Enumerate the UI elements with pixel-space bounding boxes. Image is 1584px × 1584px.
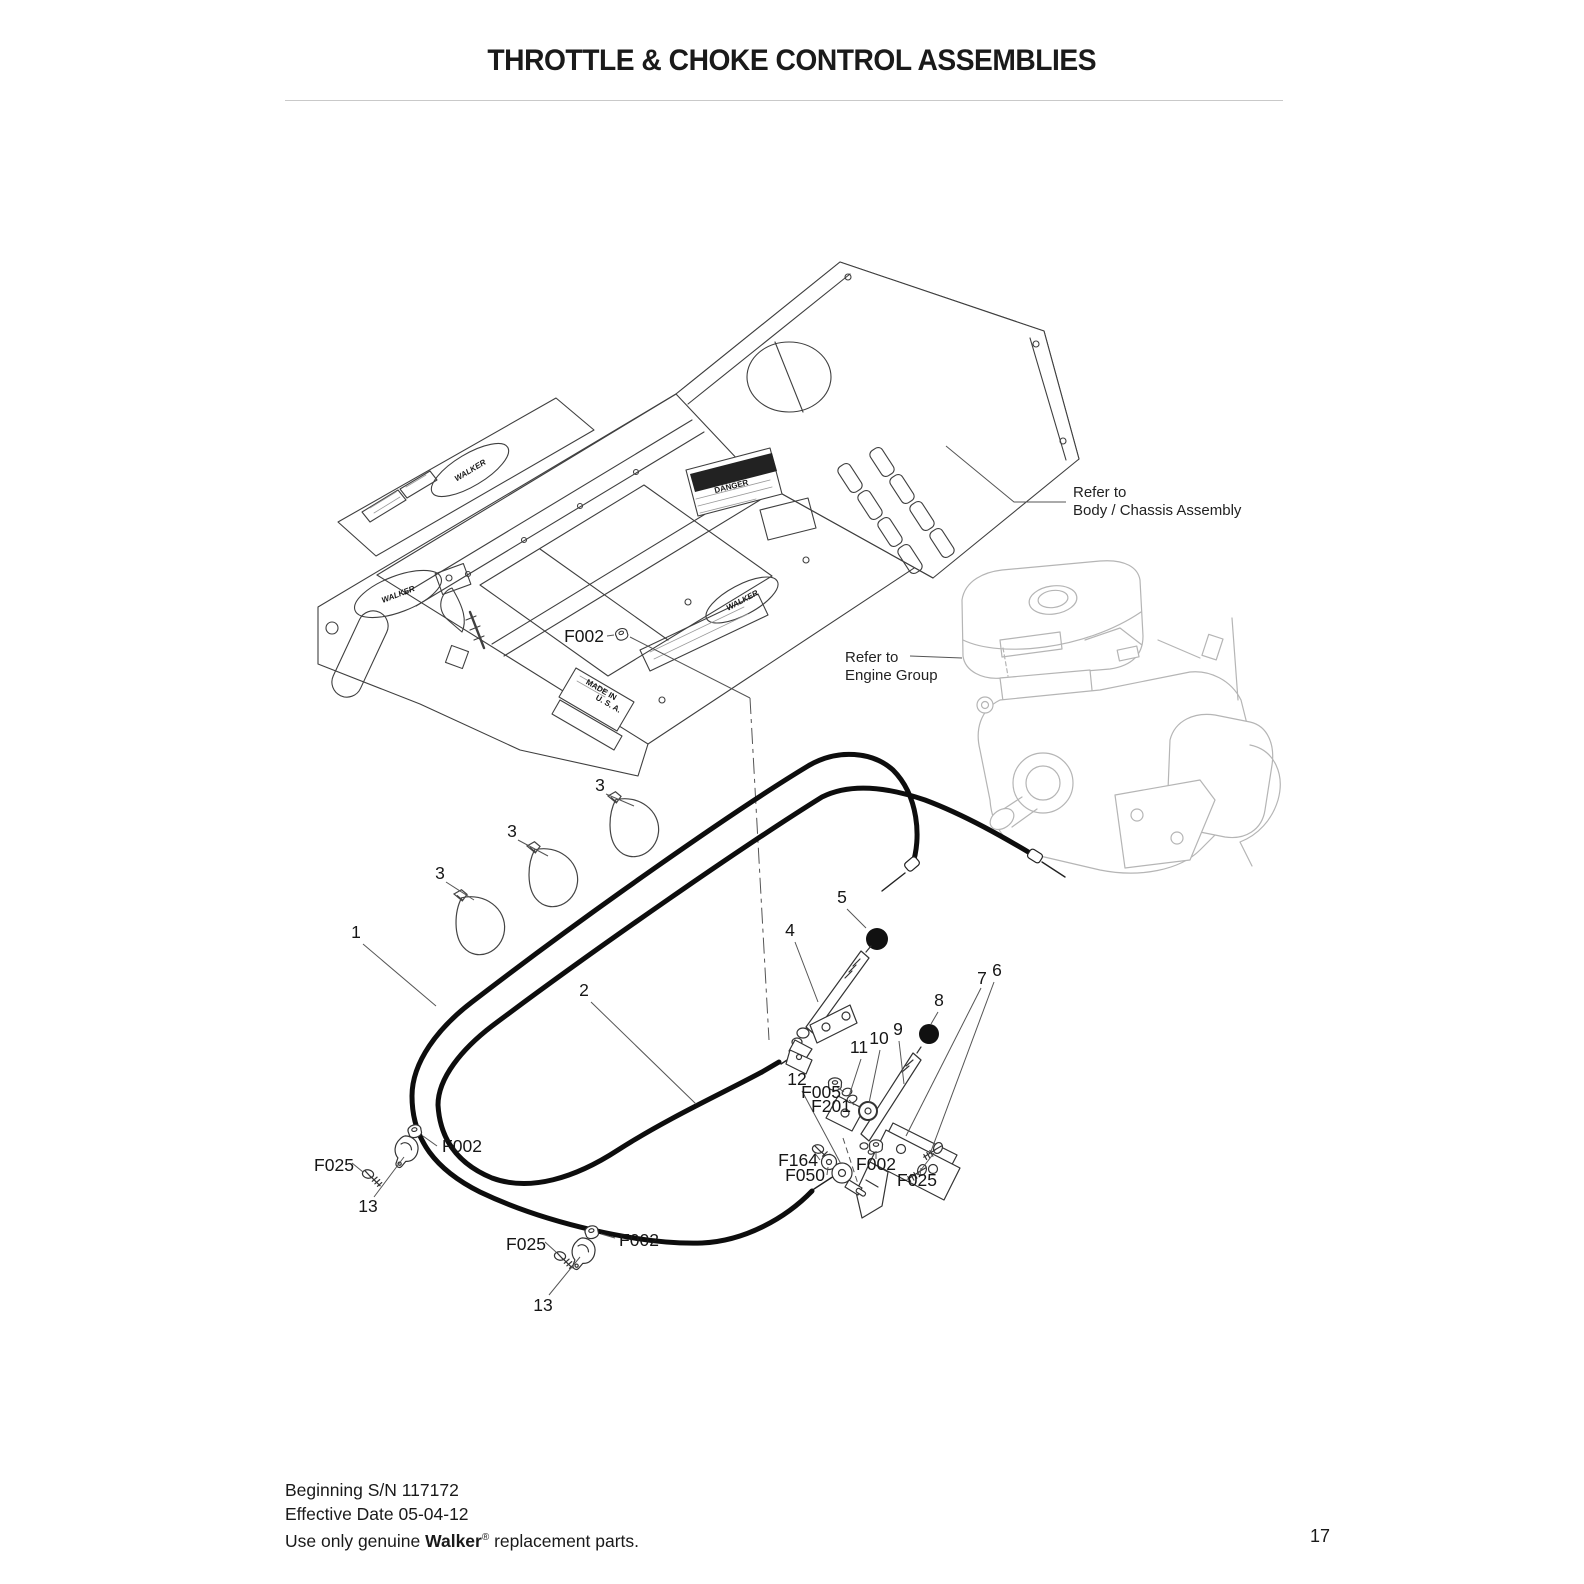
mower-body-art [318, 262, 1079, 776]
footer-genuine-parts: Use only genuine Walker® replacement par… [285, 1526, 639, 1553]
label-cable-2: 2 [579, 980, 589, 1000]
refer-engine-line1: Refer to [845, 649, 898, 666]
refer-engine-line2: Engine Group [845, 667, 938, 684]
label-plate-11: 11 [850, 1037, 868, 1057]
label-f050: F050 [785, 1165, 825, 1185]
label-f002-right: F002 [856, 1154, 896, 1174]
washer-10-art [859, 1102, 877, 1120]
refer-body-line1: Refer to [1073, 484, 1126, 501]
exploded-parts-diagram: WALKER WALKER WALKER DANGER MADE IN U. S… [0, 0, 1584, 1584]
label-lever-4: 4 [785, 920, 795, 940]
label-f025-left-1: F025 [314, 1155, 354, 1175]
cable-ties [448, 791, 662, 957]
label-f002-left-2: F002 [619, 1230, 659, 1250]
label-13-second: 13 [533, 1295, 552, 1315]
clamp-13-art-2 [568, 1236, 599, 1270]
label-cable-1: 1 [351, 922, 361, 942]
refer-body-line2: Body / Chassis Assembly [1073, 502, 1242, 519]
f002-right-nut-art [870, 1140, 883, 1153]
label-f002-left-1: F002 [442, 1136, 482, 1156]
footer-date: Effective Date 05-04-12 [285, 1502, 639, 1526]
label-washer-10: 10 [869, 1028, 889, 1048]
label-lever-9: 9 [893, 1019, 903, 1039]
label-knob-5: 5 [837, 887, 847, 907]
choke-knob-art [919, 1024, 939, 1044]
label-plate-6: 6 [992, 960, 1002, 980]
f025-left-screw-art-1 [361, 1169, 384, 1187]
label-f025-left-2: F025 [506, 1234, 546, 1254]
label-tie-lower: 3 [435, 863, 445, 883]
label-tie-upper: 3 [595, 775, 605, 795]
throttle-knob-art [866, 928, 888, 950]
manual-page: THROTTLE & CHOKE CONTROL ASSEMBLIES [0, 0, 1584, 1584]
label-plate-7: 7 [977, 968, 987, 988]
throttle-cable-path [438, 788, 1035, 1183]
label-f025-right: F025 [897, 1170, 937, 1190]
clamp-13-art-1 [391, 1134, 422, 1168]
label-tie-middle: 3 [507, 821, 517, 841]
label-f201: F201 [811, 1096, 851, 1116]
page-footer: Beginning S/N 117172 Effective Date 05-0… [285, 1478, 639, 1553]
label-f002-body: F002 [564, 626, 604, 646]
engine-art [962, 561, 1280, 873]
label-13-first: 13 [358, 1196, 377, 1216]
page-number: 17 [1310, 1526, 1330, 1547]
footer-serial: Beginning S/N 117172 [285, 1478, 639, 1502]
label-knob-8: 8 [934, 990, 944, 1010]
